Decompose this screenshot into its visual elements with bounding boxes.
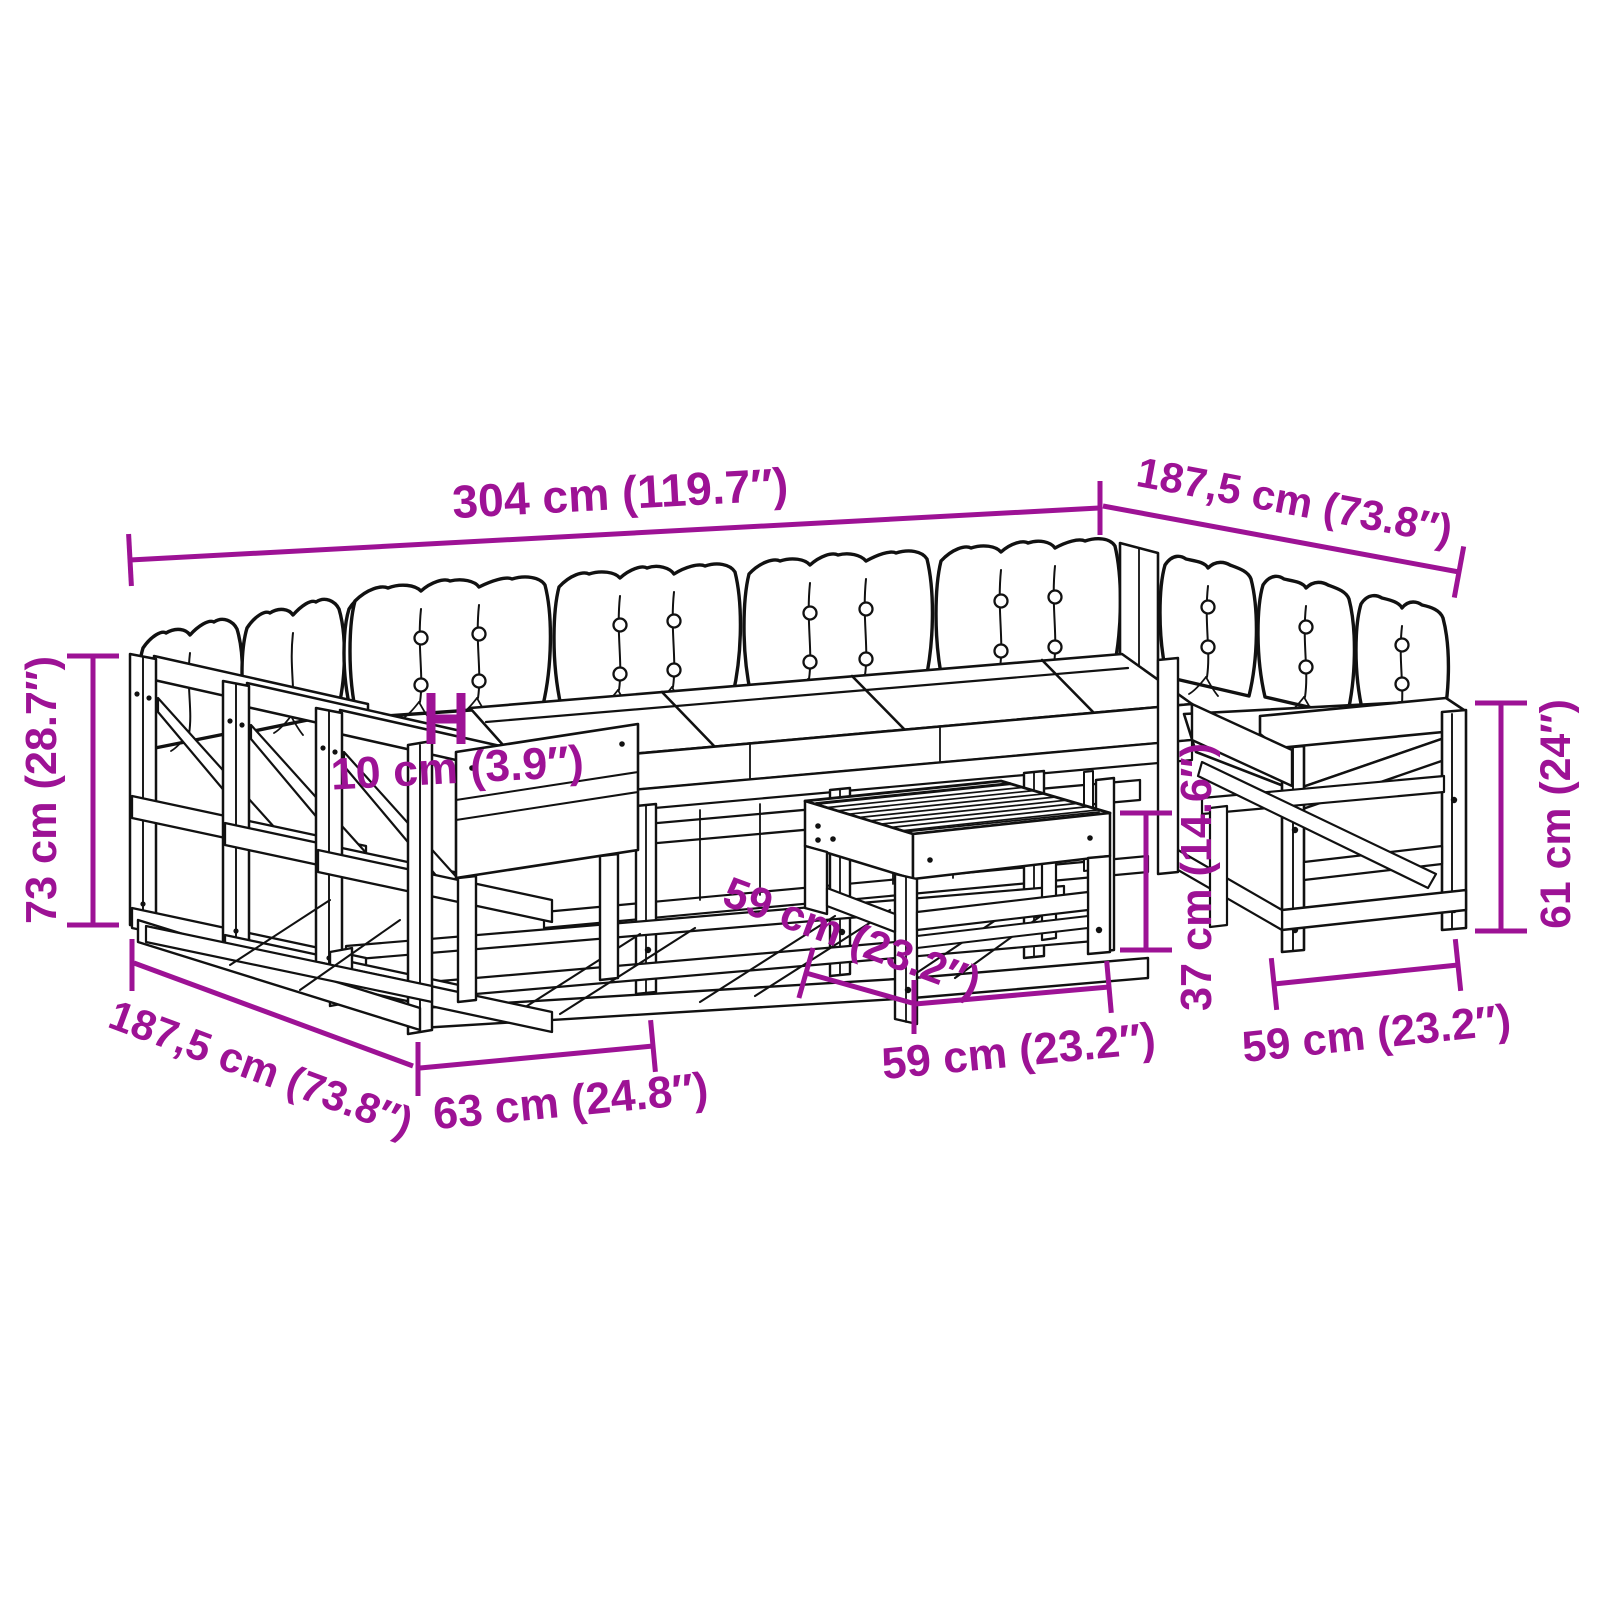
svg-text:37 cm (14.6″): 37 cm (14.6″) xyxy=(1173,743,1221,1011)
svg-text:73 cm (28.7″): 73 cm (28.7″) xyxy=(18,656,66,924)
svg-text:61 cm (24″): 61 cm (24″) xyxy=(1532,699,1580,929)
